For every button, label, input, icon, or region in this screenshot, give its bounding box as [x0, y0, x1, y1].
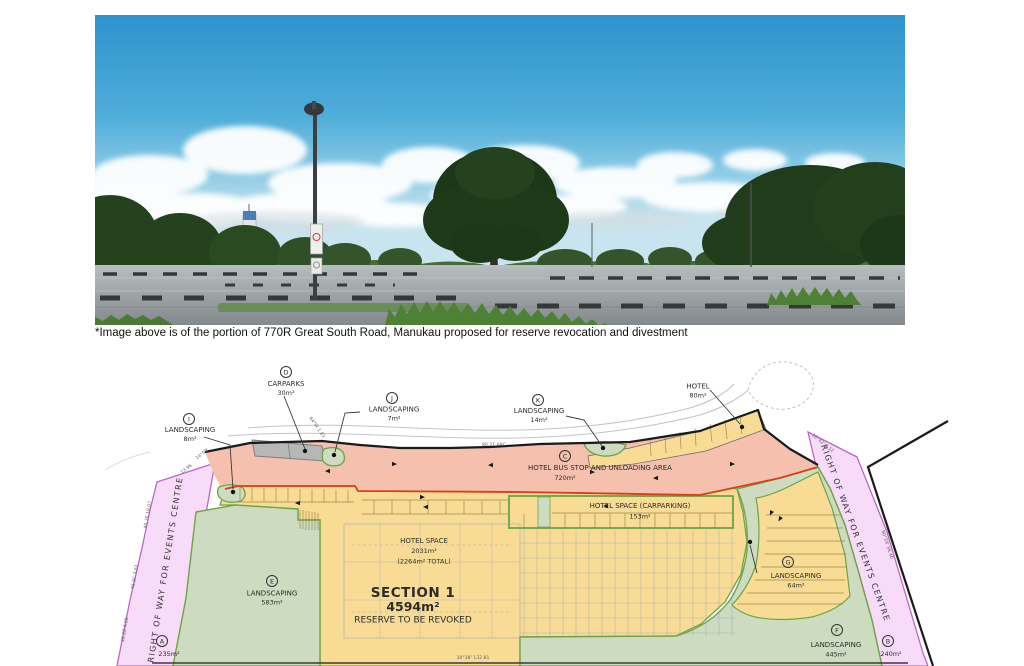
- label-i-area: 8m²: [183, 435, 196, 443]
- label-c-name: HOTEL BUS STOP AND UNLOADING AREA: [528, 464, 672, 472]
- site-plan: D CARPARKS 30m² I LANDSCAPING 8m² J LAND…: [0, 352, 1024, 666]
- label-g-name: LANDSCAPING: [771, 572, 822, 580]
- label-d-letter: D: [283, 369, 288, 377]
- label-d-name: CARPARKS: [268, 380, 306, 388]
- label-f-area: 445m²: [825, 651, 847, 659]
- label-e-area: 583m²: [261, 599, 283, 607]
- label-a-letter: A: [160, 638, 165, 646]
- label-hotel-area: 80m²: [689, 392, 707, 400]
- label-hsc-area: 153m²: [629, 513, 651, 521]
- label-section-note: RESERVE TO BE REVOKED: [354, 616, 472, 626]
- label-k-area: 14m²: [530, 416, 548, 424]
- label-e-letter: E: [270, 578, 274, 586]
- label-f-name: LANDSCAPING: [811, 641, 862, 649]
- label-g-area: 64m²: [787, 582, 805, 590]
- label-c-area: 720m²: [554, 474, 576, 482]
- label-d-area: 30m²: [277, 389, 295, 397]
- label-i-letter: I: [188, 416, 190, 424]
- label-hs-name: HOTEL SPACE: [400, 537, 448, 545]
- label-k-letter: K: [536, 397, 541, 405]
- site-photo: [95, 15, 905, 325]
- photo-caption: *Image above is of the portion of 770R G…: [95, 327, 915, 339]
- label-e-name: LANDSCAPING: [247, 590, 298, 598]
- label-section-area: 4594m²: [386, 599, 439, 614]
- label-hotel-name: HOTEL: [686, 383, 709, 391]
- label-hs-total: (2264m² TOTAL): [397, 558, 450, 566]
- label-j-letter: J: [390, 395, 393, 403]
- document-page: { "document": { "caption": "*Image above…: [0, 0, 1024, 666]
- label-j-name: LANDSCAPING: [369, 406, 420, 414]
- bearing-bottom: 30°38' 132.81: [457, 655, 490, 661]
- bearing-top: 86.21 ARC: [482, 442, 506, 448]
- label-a-area: 235m²: [158, 650, 180, 658]
- label-b-letter: B: [886, 638, 890, 646]
- label-f-letter: F: [835, 627, 839, 635]
- label-k-name: LANDSCAPING: [514, 407, 565, 415]
- label-j-area: 7m²: [387, 415, 400, 423]
- label-g-letter: G: [785, 559, 790, 567]
- hatch-detail: [300, 510, 318, 530]
- label-i-name: LANDSCAPING: [165, 426, 216, 434]
- label-b-area: 240m²: [880, 650, 902, 658]
- bearing-l6: 64°W 1.83: [307, 416, 326, 439]
- label-c-letter: C: [563, 453, 568, 461]
- hotel-space-carparking-band: [509, 496, 733, 528]
- landscaping-e-area: [173, 505, 320, 666]
- site-photo-svg: [95, 15, 905, 325]
- label-hs-area: 2031m²: [411, 547, 437, 555]
- label-hsc-name: HOTEL SPACE (CARPARKING): [590, 502, 691, 510]
- site-plan-svg: D CARPARKS 30m² I LANDSCAPING 8m² J LAND…: [0, 352, 1024, 666]
